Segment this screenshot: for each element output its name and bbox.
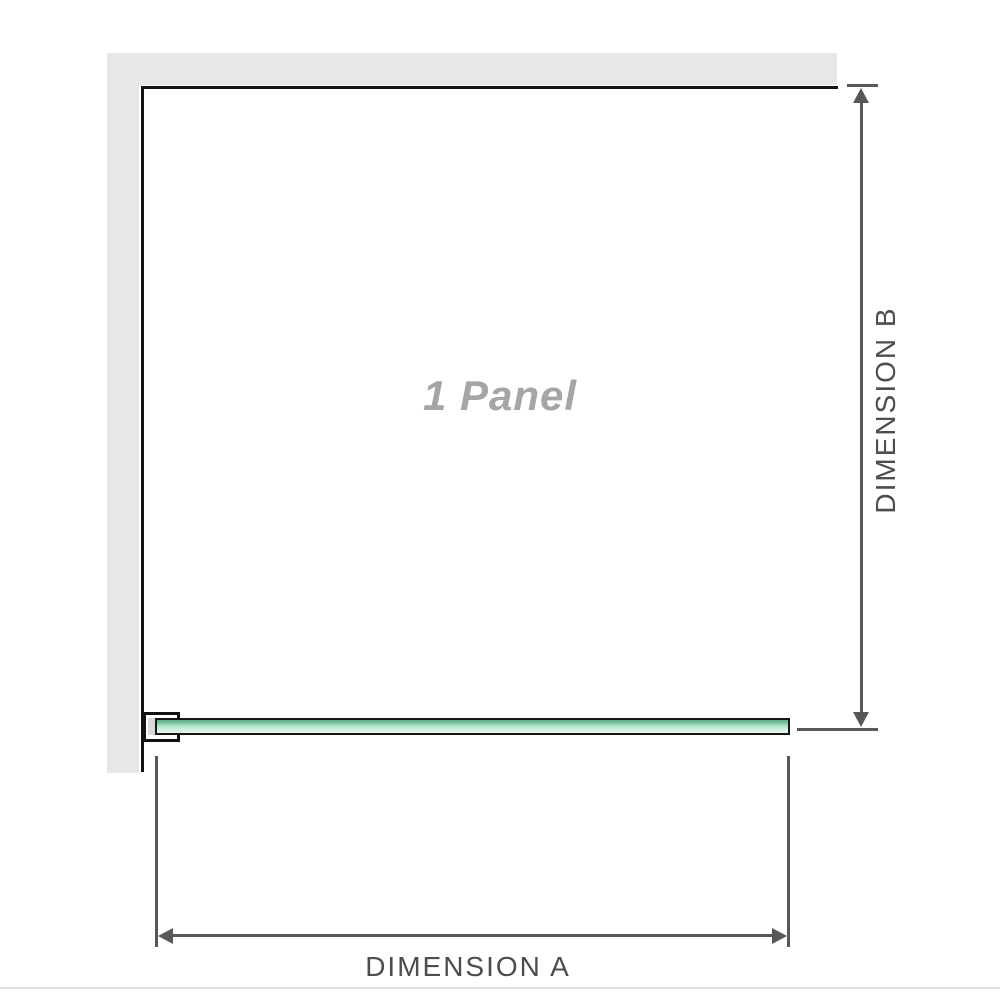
dimension-b-bottom-tick <box>797 728 878 731</box>
arrow-up-icon <box>853 88 869 103</box>
wall-top <box>107 53 837 85</box>
panel-outline-left <box>141 86 144 772</box>
dimension-a-left-extension <box>155 756 158 947</box>
bottom-separator <box>0 987 1000 989</box>
dimension-a-label: DIMENSION A <box>365 951 571 983</box>
panel-dimension-diagram: 1 Panel DIMENSION B DIMENSION A <box>0 0 1000 1000</box>
panel-outline-top <box>141 86 838 89</box>
dimension-b-line <box>860 99 863 717</box>
dimension-a-line <box>170 934 775 937</box>
arrow-down-icon <box>853 712 869 727</box>
wall-left <box>107 53 139 773</box>
arrow-right-icon <box>772 928 787 944</box>
panel-count-label: 1 Panel <box>423 372 577 420</box>
dimension-b-label: DIMENSION B <box>870 306 902 513</box>
arrow-left-icon <box>158 928 173 944</box>
dimension-a-right-extension <box>787 756 790 947</box>
dimension-b-top-tick <box>847 84 878 87</box>
glass-panel <box>155 718 790 735</box>
